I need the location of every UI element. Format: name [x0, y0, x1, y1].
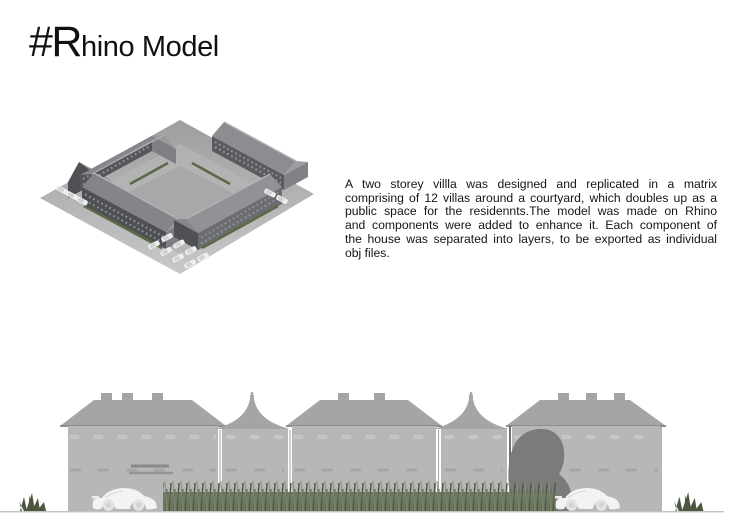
grass-tuft	[674, 492, 704, 512]
project-description: A two storey villla was designed and rep…	[345, 178, 717, 260]
description-line: the house was separated into layers, to …	[345, 233, 717, 247]
hip-roof	[506, 400, 666, 426]
portfolio-page: #Rhino Model	[0, 0, 730, 516]
grass-tuft	[19, 493, 46, 511]
description-line: and components were added to enhance it.…	[345, 219, 717, 233]
pavilion-roof	[433, 395, 509, 429]
grass-strip	[163, 479, 556, 512]
isometric-model-render	[30, 104, 322, 292]
title-prefix: #R	[29, 18, 81, 66]
description-line: public space for the residennts.The mode…	[345, 205, 717, 219]
ground-line	[0, 511, 724, 512]
hip-roof	[60, 400, 226, 426]
pavilion-roof	[214, 395, 290, 429]
description-line: obj files.	[345, 247, 717, 261]
description-line: A two storey villla was designed and rep…	[345, 178, 717, 192]
page-title: #Rhino Model	[29, 21, 219, 64]
title-rest: hino Model	[81, 31, 219, 63]
hip-roof	[286, 400, 442, 426]
description-line: comprising of 12 villas around a courtya…	[345, 192, 717, 206]
elevation-render	[0, 380, 730, 516]
